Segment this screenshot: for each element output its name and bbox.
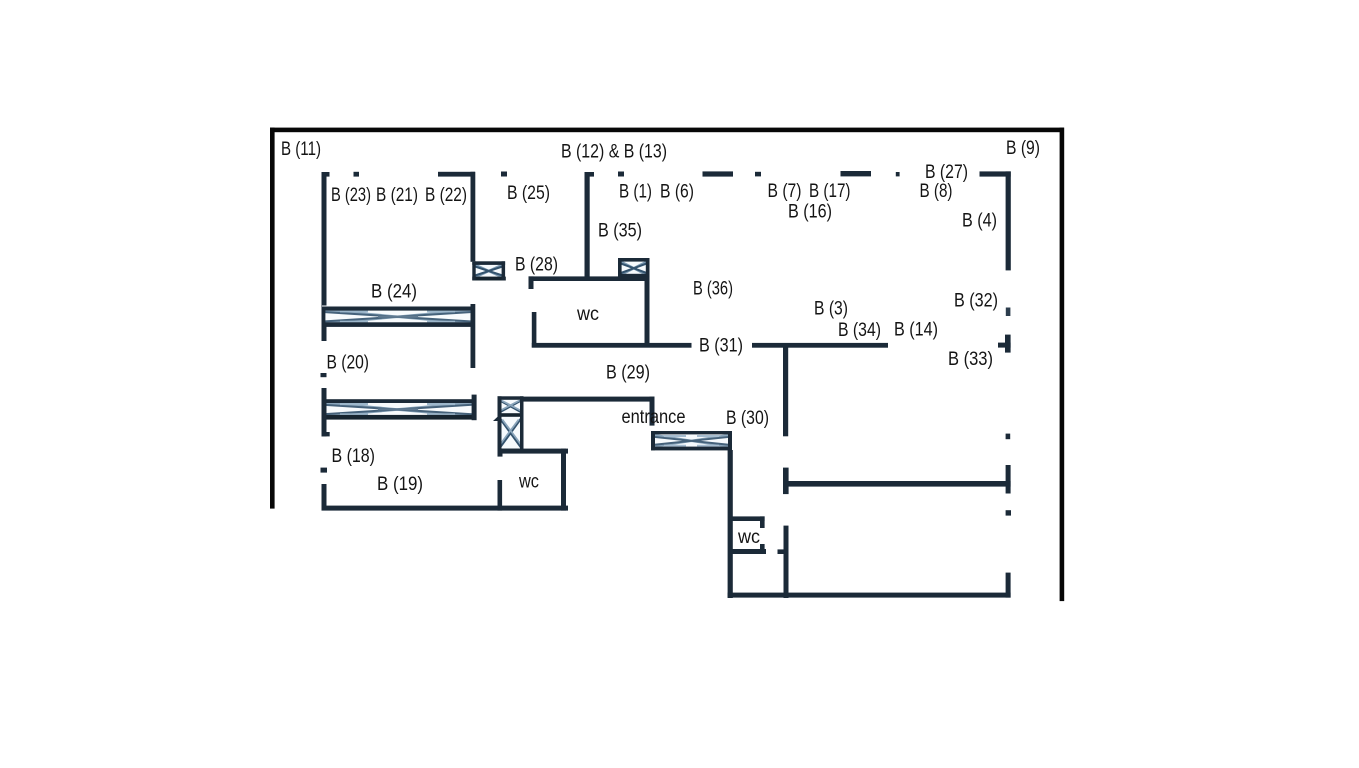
svg-text:wc: wc <box>518 471 539 493</box>
svg-text:B (31): B (31) <box>699 335 743 357</box>
svg-text:B (30): B (30) <box>726 407 769 429</box>
svg-text:B (25): B (25) <box>507 182 550 204</box>
svg-text:B (16): B (16) <box>788 201 832 223</box>
svg-text:B (11): B (11) <box>281 138 321 160</box>
svg-text:B (22): B (22) <box>425 184 467 206</box>
svg-text:wc: wc <box>576 303 599 325</box>
svg-text:B (36): B (36) <box>693 278 733 300</box>
svg-text:B (9): B (9) <box>1006 137 1040 159</box>
svg-text:B (20): B (20) <box>327 352 370 374</box>
svg-text:B (28): B (28) <box>515 254 558 276</box>
svg-text:B (1): B (1) <box>619 181 652 203</box>
svg-text:B (34): B (34) <box>838 319 881 341</box>
svg-text:B (19): B (19) <box>377 473 423 495</box>
svg-text:B (35): B (35) <box>598 220 642 242</box>
svg-text:entrance: entrance <box>622 406 686 428</box>
svg-text:B (3): B (3) <box>814 298 848 320</box>
svg-text:B (24): B (24) <box>371 281 417 303</box>
svg-text:B (14): B (14) <box>894 319 938 341</box>
svg-text:B (18): B (18) <box>332 445 376 467</box>
svg-text:B (17): B (17) <box>809 180 851 202</box>
svg-text:B (32): B (32) <box>954 290 998 312</box>
svg-text:B (8): B (8) <box>920 180 953 202</box>
svg-text:B (23): B (23) <box>331 184 371 206</box>
svg-text:B (7): B (7) <box>768 180 802 202</box>
svg-text:B (33): B (33) <box>948 348 993 370</box>
svg-text:B (21): B (21) <box>376 184 418 206</box>
svg-text:B (29): B (29) <box>606 362 650 384</box>
svg-text:B (4): B (4) <box>962 210 997 232</box>
svg-text:B (6): B (6) <box>660 181 694 203</box>
svg-text:B (12) & B (13): B (12) & B (13) <box>561 141 667 163</box>
svg-text:wc: wc <box>737 526 760 548</box>
